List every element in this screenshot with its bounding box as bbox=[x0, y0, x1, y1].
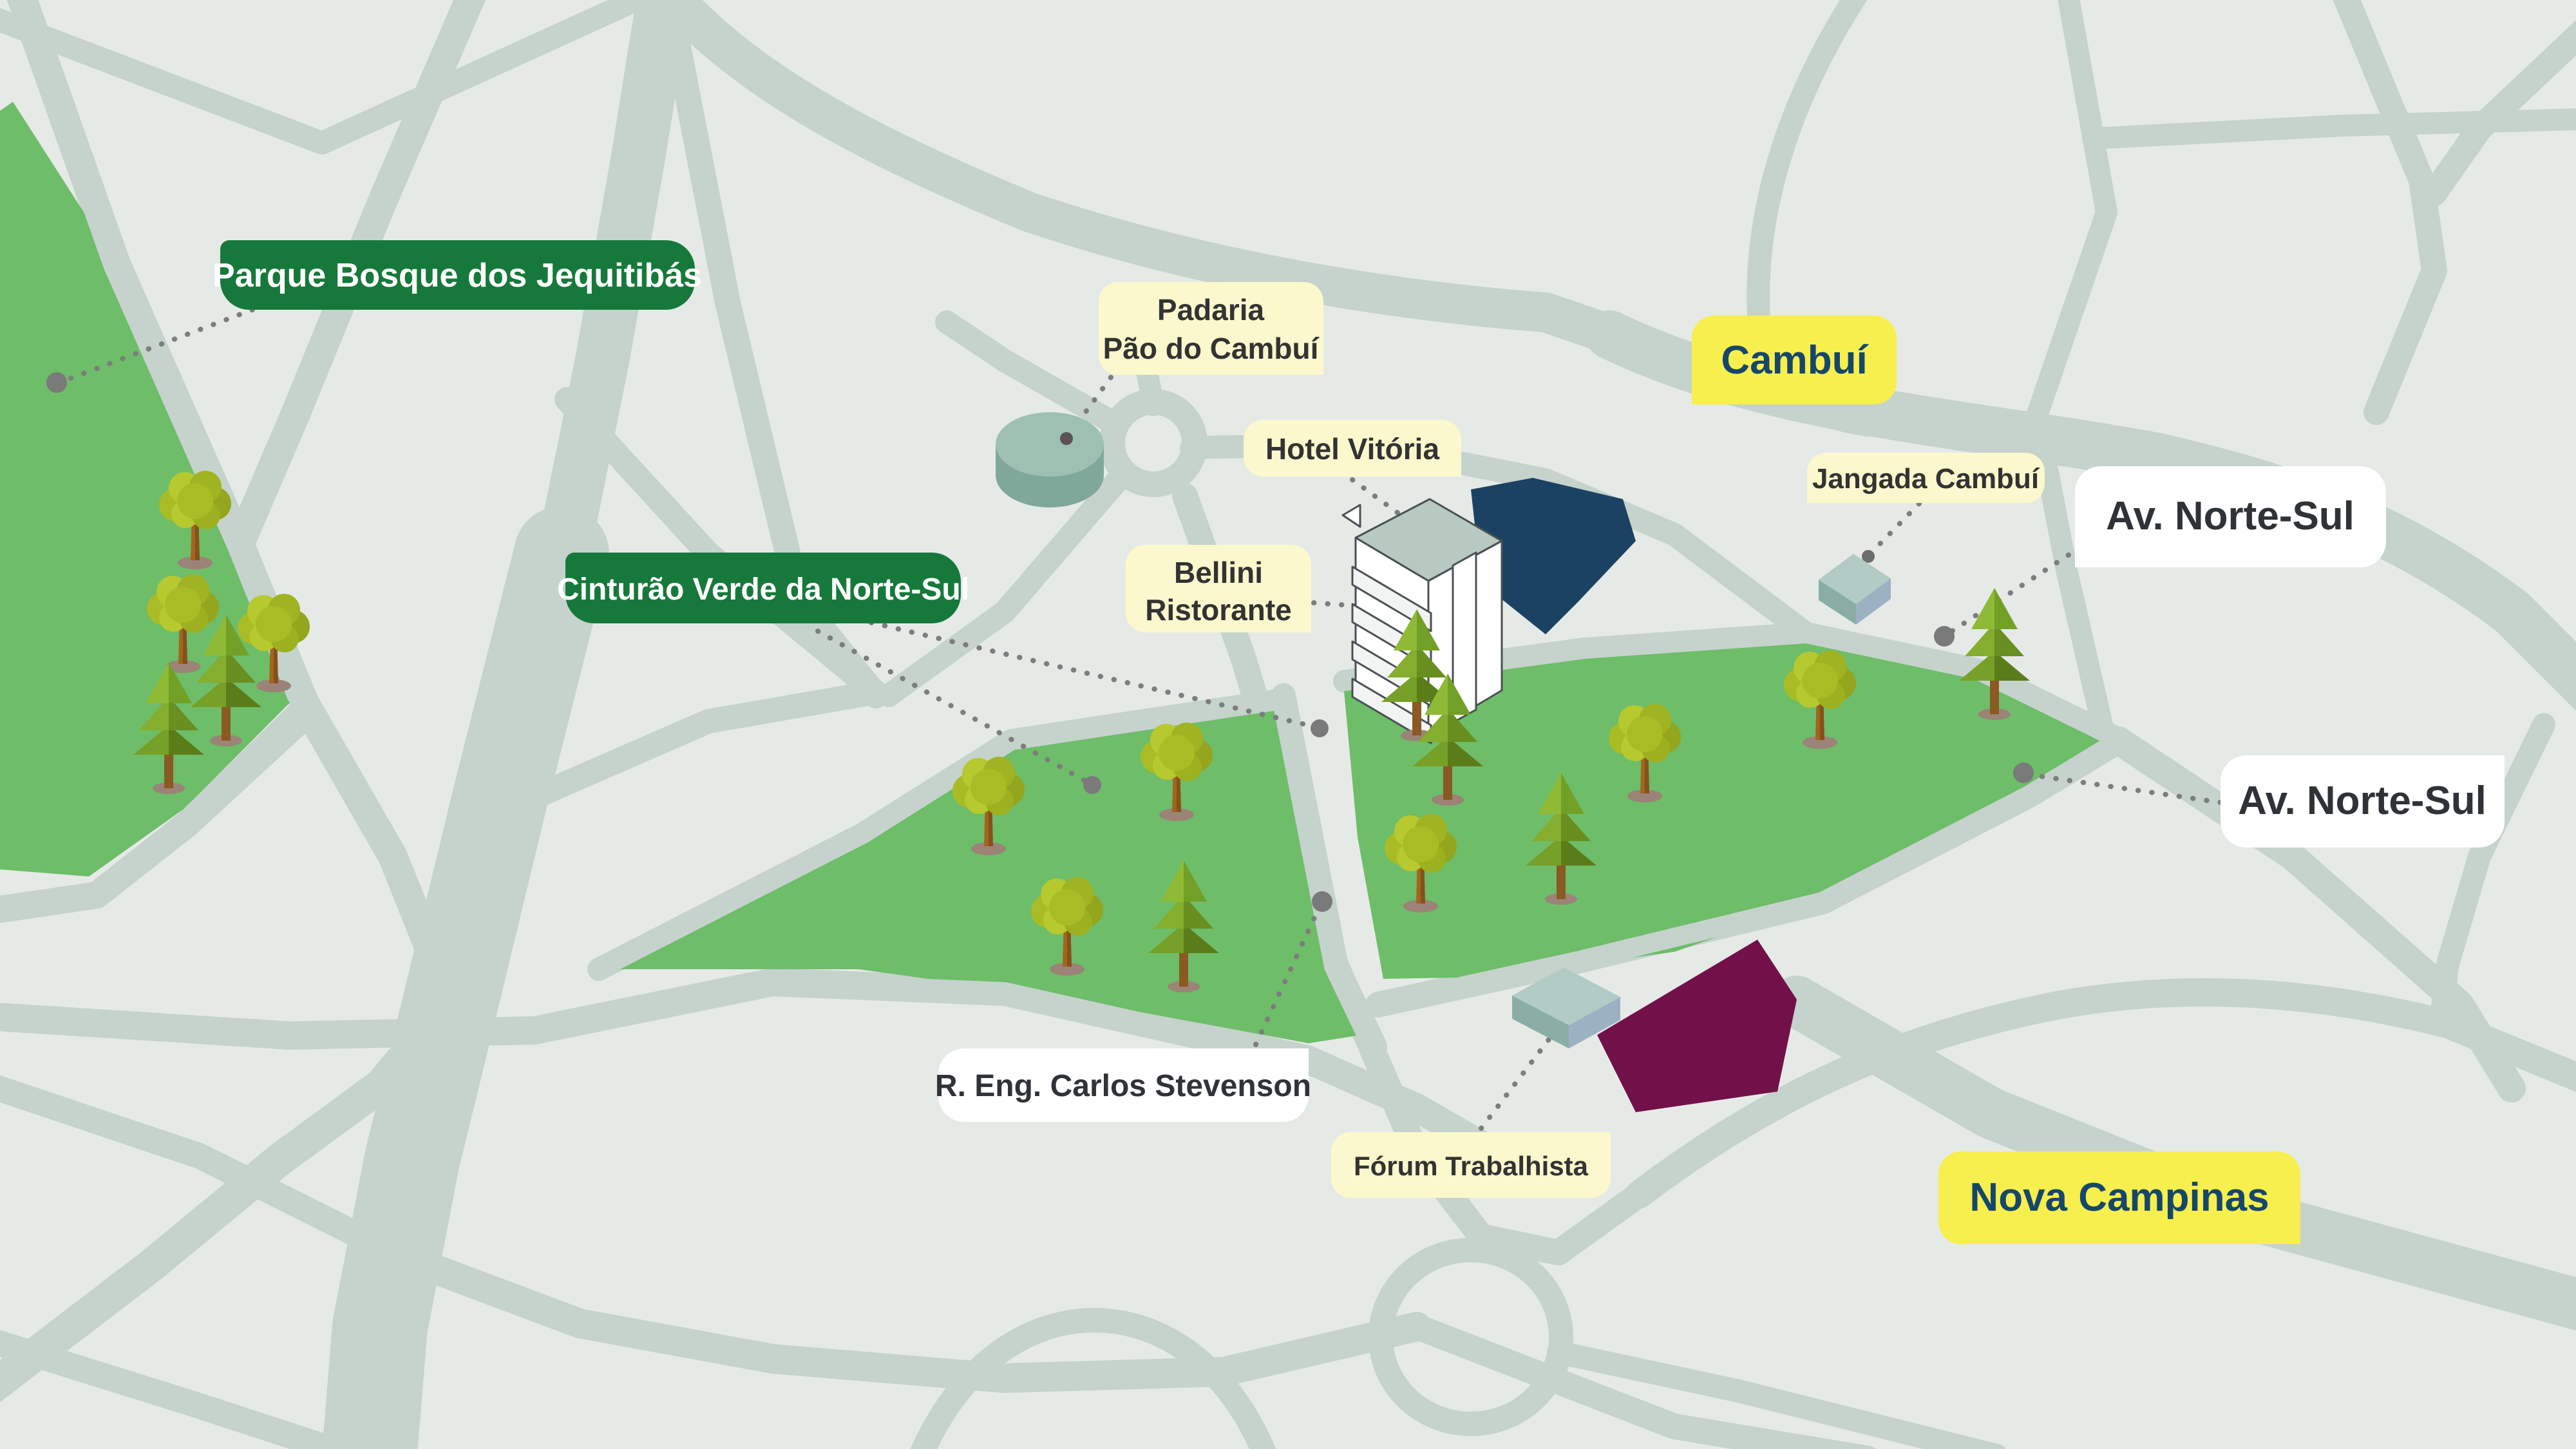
svg-text:Nova Campinas: Nova Campinas bbox=[1969, 1175, 2269, 1220]
svg-text:Av. Norte-Sul: Av. Norte-Sul bbox=[2238, 779, 2486, 823]
svg-text:R. Eng. Carlos Stevenson: R. Eng. Carlos Stevenson bbox=[935, 1069, 1311, 1103]
svg-text:Parque Bosque dos Jequitibás: Parque Bosque dos Jequitibás bbox=[213, 257, 702, 294]
svg-text:Hotel Vitória: Hotel Vitória bbox=[1265, 432, 1440, 466]
svg-text:Padaria: Padaria bbox=[1157, 293, 1265, 327]
svg-text:Fórum Trabalhista: Fórum Trabalhista bbox=[1354, 1151, 1589, 1181]
svg-text:Pão do Cambuí: Pão do Cambuí bbox=[1103, 332, 1320, 365]
svg-text:Cambuí: Cambuí bbox=[1721, 338, 1868, 383]
svg-text:Bellini: Bellini bbox=[1174, 556, 1263, 589]
svg-text:Jangada Cambuí: Jangada Cambuí bbox=[1812, 463, 2040, 495]
svg-text:Av. Norte-Sul: Av. Norte-Sul bbox=[2106, 494, 2354, 538]
svg-text:Cinturão Verde da Norte-Sul: Cinturão Verde da Norte-Sul bbox=[557, 573, 969, 607]
svg-text:Ristorante: Ristorante bbox=[1145, 593, 1291, 627]
